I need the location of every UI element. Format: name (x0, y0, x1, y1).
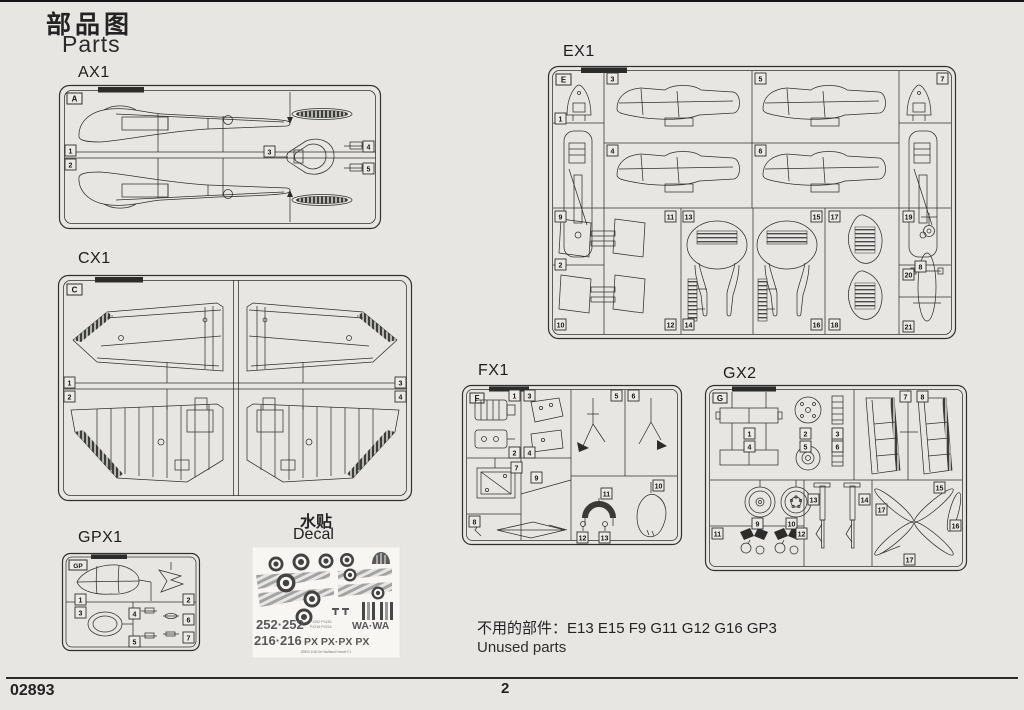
product-code: 02893 (10, 682, 55, 700)
part-number-box: 5 (129, 636, 140, 647)
svg-text:A: A (72, 95, 78, 104)
part-number-box: 7 (511, 462, 522, 473)
svg-text:13: 13 (601, 536, 609, 543)
svg-text:4: 4 (399, 395, 403, 402)
part-number-box: 15 (934, 482, 945, 493)
svg-text:8: 8 (473, 520, 477, 527)
part-number-box: 18 (829, 319, 840, 330)
part-number-box: 6 (832, 441, 843, 452)
part-number-box: 12 (577, 532, 588, 543)
part-number-box: 5 (363, 163, 374, 174)
svg-text:14: 14 (685, 323, 693, 330)
svg-text:16: 16 (813, 323, 821, 330)
part-number-box: 2 (509, 447, 520, 458)
part-number-box: 6 (183, 614, 194, 625)
svg-text:6: 6 (759, 149, 763, 156)
svg-text:1: 1 (69, 149, 73, 156)
svg-text:11: 11 (667, 215, 675, 222)
svg-text:3: 3 (528, 394, 532, 401)
part-number-box: 5 (800, 441, 811, 452)
svg-text:19: 19 (905, 215, 913, 222)
bottom-rule (6, 677, 1018, 679)
part-number-box: 15 (811, 211, 822, 222)
engine-nacelle-part (617, 86, 740, 127)
svg-text:10: 10 (557, 323, 565, 330)
part-number-box: 6 (755, 145, 766, 156)
svg-text:GP: GP (73, 563, 83, 570)
wheel-parts (745, 480, 811, 517)
svg-text:1: 1 (79, 598, 83, 605)
decal-serial-252: 252·252 (256, 617, 304, 632)
part-number-box: 9 (752, 518, 763, 529)
part-number-box: 19 (903, 211, 914, 222)
sprue-corner-letter: E (556, 74, 571, 85)
sprue-ex1-label: EX1 (563, 43, 595, 61)
sprue-corner-letter: C (67, 284, 82, 295)
part-number-box: 17 (904, 554, 915, 565)
svg-text:17: 17 (878, 508, 886, 515)
part-number-box: 17 (876, 504, 887, 515)
part-number-box: 13 (683, 211, 694, 222)
part-number-box: 2 (800, 428, 811, 439)
svg-text:17: 17 (831, 215, 839, 222)
svg-text:11: 11 (603, 492, 611, 499)
part-number-box: 4 (129, 608, 140, 619)
part-number-box: 4 (744, 441, 755, 452)
part-number-box: 10 (653, 480, 664, 491)
sprue-cx1-diagram: C 1234 (57, 274, 413, 502)
radiator-flap-parts (559, 219, 645, 313)
sprue-ex1-diagram: E (547, 65, 957, 340)
decal-code-px: PX PX·PX PX (304, 636, 369, 648)
decal-serial-216: 216·216 (254, 633, 302, 648)
fuselage-half-part (79, 106, 352, 142)
page-number: 2 (501, 680, 509, 697)
svg-text:7: 7 (904, 395, 908, 402)
sprue-corner-letter: GP (69, 560, 87, 570)
tailwheel-part (921, 213, 937, 237)
svg-text:16: 16 (952, 524, 960, 531)
svg-text:10: 10 (655, 484, 663, 491)
part-number-box: 16 (950, 520, 961, 531)
unused-parts-text-cn: 不用的部件：E13 E15 F9 G11 G12 G16 GP3 (477, 617, 777, 638)
part-number-box: 8 (917, 391, 928, 402)
svg-text:4: 4 (748, 445, 752, 452)
svg-text:13: 13 (685, 215, 693, 222)
clear-frame-part (159, 562, 183, 592)
manual-page: 部品图 Parts AX1 A (0, 0, 1024, 710)
svg-text:5: 5 (133, 640, 137, 647)
svg-text:17: 17 (906, 558, 914, 565)
svg-text:2: 2 (69, 163, 73, 170)
svg-text:20: 20 (905, 273, 913, 280)
part-number-box: 2 (183, 594, 194, 605)
part-number-box: 1 (75, 594, 86, 605)
part-number-box: 9 (555, 211, 566, 222)
part-number-box: 1 (509, 390, 520, 401)
part-number-box: 2 (64, 391, 75, 402)
svg-text:4: 4 (528, 451, 532, 458)
svg-text:12: 12 (667, 323, 675, 330)
svg-text:4: 4 (611, 149, 615, 156)
part-number-box: 9 (531, 472, 542, 483)
svg-text:3: 3 (399, 381, 403, 388)
gear-fork-part (740, 528, 768, 554)
sprue-gpx1-diagram: GP 1234567 (61, 552, 201, 652)
svg-text:2: 2 (68, 395, 72, 402)
sprue-gx2-label: GX2 (723, 365, 757, 383)
part-number-box: 6 (628, 390, 639, 401)
radio-box-part (477, 458, 515, 498)
canopy-part (77, 565, 151, 601)
cowling-front-part (687, 221, 747, 321)
svg-text:15: 15 (813, 215, 821, 222)
engine-block-parts (475, 400, 515, 448)
part-number-box: 1 (65, 145, 76, 156)
part-number-box: 3 (832, 428, 843, 439)
svg-text:2: 2 (187, 598, 191, 605)
oleo-strut-part (814, 483, 830, 548)
part-number-box: 3 (395, 377, 406, 388)
svg-text:5: 5 (367, 167, 371, 174)
svg-text:13: 13 (810, 498, 818, 505)
svg-text:3: 3 (79, 611, 83, 618)
svg-text:7: 7 (187, 636, 191, 643)
svg-text:3: 3 (836, 432, 840, 439)
svg-text:15: 15 (936, 486, 944, 493)
svg-text:E: E (561, 76, 567, 85)
part-number-box: 2 (65, 159, 76, 170)
part-number-box: 14 (683, 319, 694, 330)
part-number-box: 1 (744, 428, 755, 439)
part-number-box: 11 (712, 528, 723, 539)
part-number-box: 12 (665, 319, 676, 330)
decal-stencil-2: PX216·PX216 (310, 625, 332, 629)
svg-text:12: 12 (579, 536, 587, 543)
unused-parts-text-en: Unused parts (477, 639, 566, 656)
cowl-intake-part (848, 215, 882, 263)
part-number-box: 4 (524, 447, 535, 458)
svg-text:5: 5 (759, 77, 763, 84)
sprue-fx1-diagram: F (461, 384, 683, 546)
svg-text:4: 4 (133, 612, 137, 619)
part-number-box: 4 (395, 391, 406, 402)
part-number-box: 3 (264, 146, 275, 157)
tail-cone-part (276, 139, 334, 174)
svg-text:2: 2 (804, 432, 808, 439)
svg-text:5: 5 (615, 394, 619, 401)
svg-text:3: 3 (611, 77, 615, 84)
part-number-box: 5 (611, 390, 622, 401)
svg-text:7: 7 (515, 466, 519, 473)
cockpit-sidewall-part (564, 131, 592, 257)
part-number-box: 4 (363, 141, 374, 152)
part-number-box: 14 (859, 494, 870, 505)
svg-text:3: 3 (268, 150, 272, 157)
sprue-ax1-label: AX1 (78, 64, 110, 82)
part-number-box: 3 (607, 73, 618, 84)
svg-text:5: 5 (804, 445, 808, 452)
part-number-box: 1 (64, 377, 75, 388)
bulkhead-part (567, 85, 591, 121)
svg-text:1: 1 (68, 381, 72, 388)
part-number-box: 20 (903, 269, 914, 280)
svg-text:7: 7 (941, 77, 945, 84)
svg-text:2: 2 (559, 263, 563, 270)
sprue-corner-letter: G (713, 393, 727, 403)
sprue-gx2-diagram: G (704, 384, 968, 572)
svg-text:9: 9 (756, 522, 760, 529)
decal-sheet: 252·252 PX252·PX252 PX216·PX216 WA·WA 21… (246, 547, 406, 659)
sprue-corner-letter: F (470, 393, 484, 403)
page-title-en: Parts (62, 31, 121, 58)
part-number-box: 7 (183, 632, 194, 643)
svg-text:6: 6 (187, 618, 191, 625)
part-number-box: 8 (469, 516, 480, 527)
top-rule (0, 0, 1024, 2)
clear-lens-part (88, 612, 133, 636)
part-number-box: 10 (555, 319, 566, 330)
svg-text:9: 9 (535, 476, 539, 483)
part-number-box: 8 (915, 261, 926, 272)
wheel-bay-part (866, 398, 900, 474)
svg-text:2: 2 (513, 451, 517, 458)
decal-sheet-footer: 02893 1/48 De Havilland Hornet F.1 (301, 650, 352, 654)
wire-and-frame-parts (473, 518, 567, 538)
svg-text:1: 1 (748, 432, 752, 439)
small-clear-parts (141, 608, 179, 638)
decal-label-en: Decal (293, 526, 334, 544)
sprue-gpx1-label: GPX1 (78, 529, 123, 547)
part-number-box: 11 (601, 488, 612, 499)
upper-wing-part (73, 303, 223, 371)
part-number-box: 17 (829, 211, 840, 222)
svg-text:21: 21 (905, 325, 913, 332)
part-number-box: 7 (937, 73, 948, 84)
svg-text:8: 8 (919, 265, 923, 272)
svg-text:G: G (717, 394, 723, 403)
part-number-box: 7 (900, 391, 911, 402)
svg-text:12: 12 (798, 532, 806, 539)
part-number-box: 5 (755, 73, 766, 84)
sprue-corner-letter: A (67, 93, 82, 104)
sprue-ax1-diagram: A 12345 (58, 84, 382, 230)
svg-text:10: 10 (788, 522, 796, 529)
svg-text:C: C (72, 286, 78, 295)
part-number-box: 16 (811, 319, 822, 330)
svg-text:6: 6 (836, 445, 840, 452)
part-number-box: 1 (555, 113, 566, 124)
svg-text:11: 11 (714, 532, 722, 539)
part-number-box: 4 (607, 145, 618, 156)
part-number-box: 13 (599, 532, 610, 543)
part-number-box: 2 (555, 259, 566, 270)
small-knob-parts (581, 522, 608, 532)
svg-text:18: 18 (831, 323, 839, 330)
part-number-box: 3 (75, 607, 86, 618)
sprue-fx1-label: FX1 (478, 362, 509, 380)
svg-text:14: 14 (861, 498, 869, 505)
part-number-box: 13 (808, 494, 819, 505)
svg-text:9: 9 (559, 215, 563, 222)
part-number-box: 11 (665, 211, 676, 222)
svg-text:1: 1 (513, 394, 517, 401)
landing-gear-strut-parts (577, 398, 667, 452)
part-number-box: 12 (796, 528, 807, 539)
decal-code-wa: WA·WA (352, 620, 390, 632)
part-number-box: 21 (903, 321, 914, 332)
lower-wing-part (71, 398, 223, 482)
svg-text:6: 6 (632, 394, 636, 401)
part-number-box: 10 (786, 518, 797, 529)
decal-stencil-1: PX252·PX252 (310, 620, 332, 624)
part-number-box: 3 (524, 390, 535, 401)
svg-text:4: 4 (367, 145, 371, 152)
sprue-cx1-label: CX1 (78, 250, 111, 268)
arch-part (585, 498, 613, 526)
svg-text:8: 8 (921, 395, 925, 402)
engine-mount-parts (531, 398, 563, 452)
svg-text:1: 1 (559, 117, 563, 124)
